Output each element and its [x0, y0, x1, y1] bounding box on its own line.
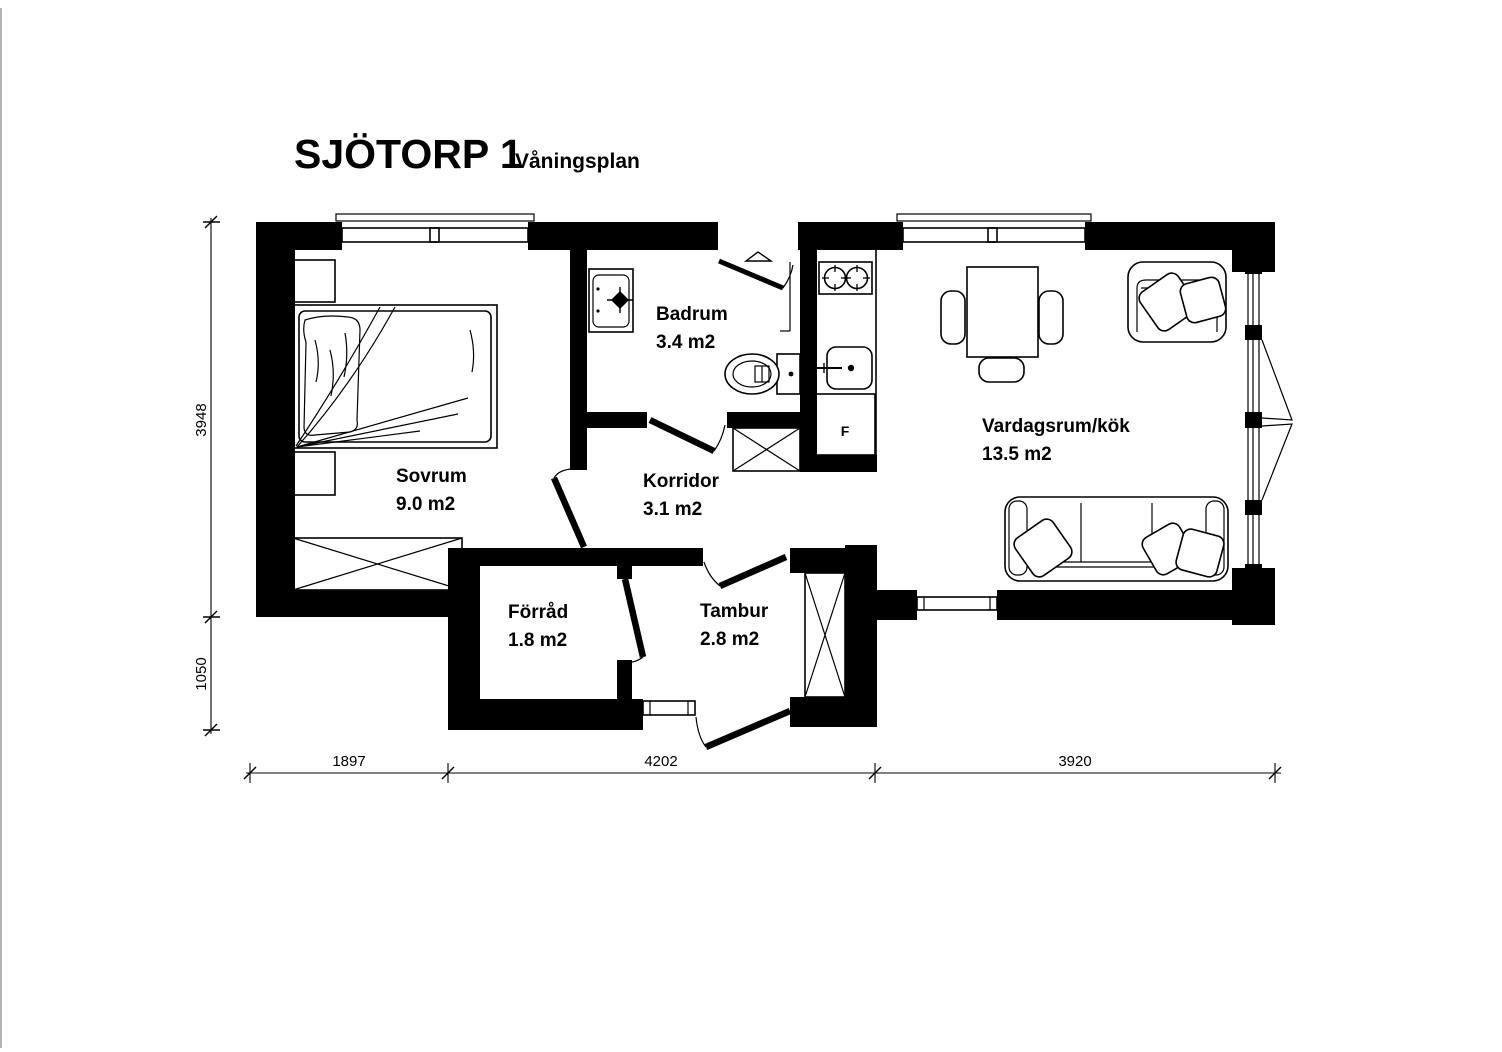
dim-1050: 1050 [193, 657, 210, 690]
dim-1897: 1897 [332, 753, 365, 770]
wall-living-bottom-2 [997, 590, 1240, 620]
room-area-badrum: 3.4 m2 [656, 332, 715, 353]
door-entrance [696, 711, 790, 747]
page-title: SJÖTORP 1 [294, 131, 523, 177]
room-label-vardagsrum: Vardagsrum/kök [982, 416, 1130, 437]
door-sovrum-korridor [554, 469, 584, 547]
bedroom-furniture [293, 260, 497, 495]
room-area-korridor: 3.1 m2 [643, 499, 702, 520]
kitchen-sink [817, 347, 872, 389]
room-area-vardagsrum: 13.5 m2 [982, 444, 1052, 465]
chair-left [941, 291, 965, 344]
wall-top-4 [1085, 222, 1275, 250]
wall-kitchen-south [800, 455, 877, 472]
stove [819, 262, 872, 294]
wardrobe-korridor [733, 428, 800, 471]
chair-right [1039, 291, 1063, 344]
wall-forrad-bottom [448, 699, 643, 730]
room-label-forrad: Förråd [508, 602, 568, 623]
door-forrad [620, 579, 643, 662]
glass-door-swing-upper [1262, 340, 1292, 420]
dim-4202: 4202 [644, 753, 677, 770]
double-bed [293, 305, 497, 448]
fridge: F [815, 394, 875, 455]
wall-corner-br [1232, 568, 1275, 625]
room-label-korridor: Korridor [643, 471, 720, 492]
dining-table [967, 267, 1038, 357]
floor-plan-drawing: SJÖTORP 1 Våningsplan [0, 0, 1502, 1052]
dimension-left: 3948 1050 [193, 216, 220, 736]
wall-tambur-north [790, 548, 877, 573]
door-korridor-tambur [704, 557, 786, 586]
wall-badrum-south-1 [570, 412, 647, 428]
armchair [1128, 262, 1227, 342]
glazed-wall-east [1245, 266, 1292, 572]
dim-3920: 3920 [1058, 753, 1091, 770]
washbasin [589, 269, 633, 332]
nightstand-bottom [293, 452, 335, 495]
wall-sovrum-bottom [256, 590, 448, 617]
wall-forrad-east-stub-top [617, 565, 632, 579]
wall-korridor-south [448, 548, 703, 566]
room-label-badrum: Badrum [656, 304, 728, 325]
window-vardagsrum-top [897, 214, 1091, 242]
room-label-tambur: Tambur [700, 601, 769, 622]
wall-kitchen-west [800, 250, 817, 472]
room-area-sovrum: 9.0 m2 [396, 494, 455, 515]
wall-badrum-south-2 [727, 412, 800, 428]
wall-living-bottom-1 [877, 590, 917, 620]
chair-bottom [979, 358, 1024, 382]
wall-sovrum-badrum [570, 250, 587, 470]
scan-edge-artifact [0, 8, 2, 1048]
window-sovrum [336, 214, 534, 242]
room-label-sovrum: Sovrum [396, 466, 467, 487]
page-subtitle: Våningsplan [515, 150, 640, 173]
kitchen-fixtures: F [815, 250, 876, 472]
wall-forrad-east-stub-bottom [617, 660, 632, 699]
wall-top-3 [798, 222, 903, 250]
room-area-forrad: 1.8 m2 [508, 630, 567, 651]
wall-top-2 [528, 222, 718, 250]
room-area-tambur: 2.8 m2 [700, 629, 759, 650]
window-tambur [643, 701, 695, 715]
toilet [725, 354, 800, 394]
dining-set [941, 267, 1063, 382]
door-badrum-exterior [719, 252, 793, 331]
door-badrum [650, 420, 725, 451]
nightstand-top [293, 260, 335, 302]
wall-left [256, 222, 295, 617]
door-swing-triangle [746, 252, 771, 261]
floor-plan-page: SJÖTORP 1 Våningsplan [0, 0, 1502, 1052]
sofa [1005, 497, 1228, 581]
fridge-label: F [841, 423, 850, 439]
window-vardagsrum-bottom [917, 597, 997, 610]
dimension-bottom: 1897 4202 3920 [244, 753, 1281, 783]
dim-3948: 3948 [193, 403, 210, 436]
glass-door-swing-lower [1262, 424, 1292, 500]
wardrobe-sovrum [293, 538, 462, 590]
wardrobe-tambur [805, 573, 845, 697]
